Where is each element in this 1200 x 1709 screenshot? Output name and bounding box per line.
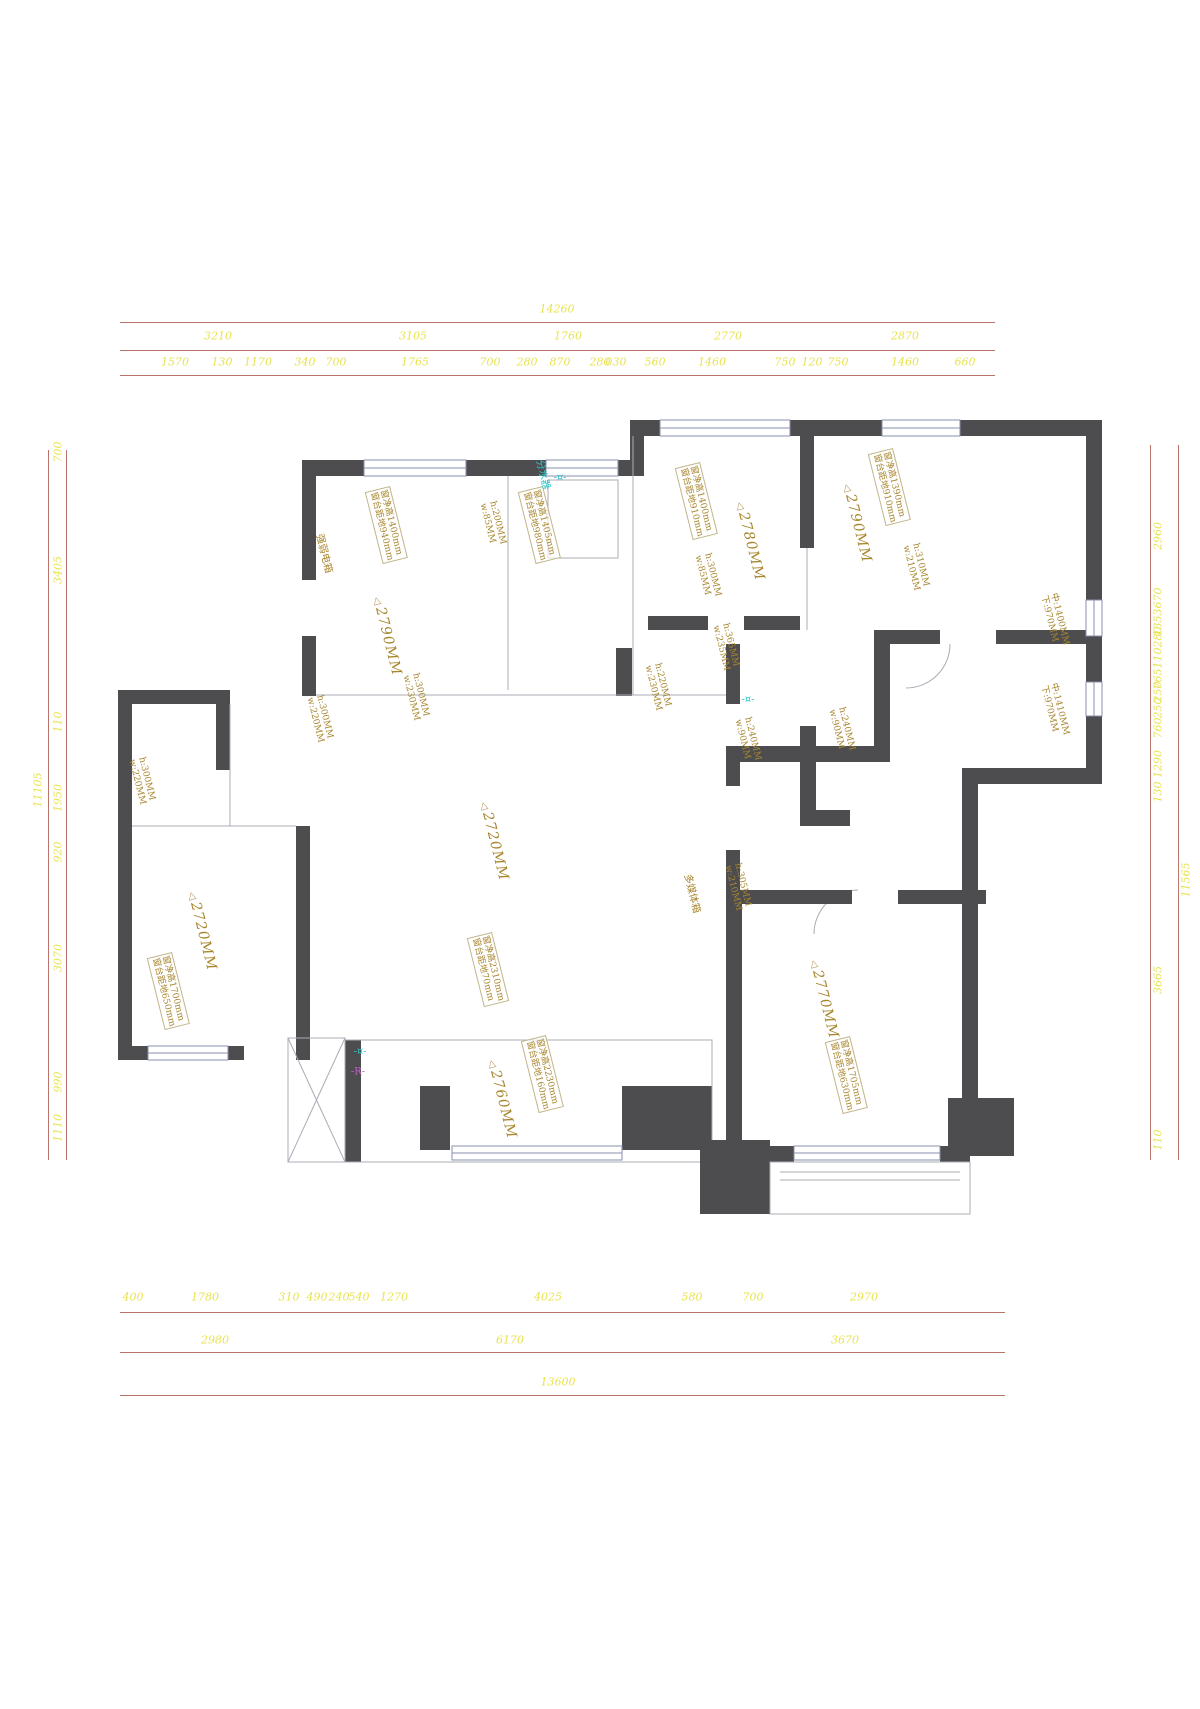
dimension-label: 750 <box>775 356 796 369</box>
dimension-label: 1270 <box>380 1291 408 1304</box>
dimension-label: 310 <box>279 1291 300 1304</box>
dimension-total-right: 11565 <box>1180 863 1193 898</box>
height-flag-icon: ◁ <box>733 501 746 512</box>
plumbing-symbol: -R- <box>351 1067 365 1078</box>
plumbing-symbol: -¤- <box>553 473 566 484</box>
dimension-label: 3070 <box>52 944 65 972</box>
dimension-label: 760 <box>1152 718 1165 739</box>
dimension-label: 1290 <box>1152 750 1165 778</box>
dimension-label: 280 <box>517 356 538 369</box>
dimension-label: 580 <box>682 1291 703 1304</box>
dimension-label: 110 <box>1152 1130 1165 1151</box>
floor-plan-canvas: 14260 32103105176027702870 1570130117034… <box>0 0 1200 1709</box>
dimension-label: 130 <box>212 356 233 369</box>
dimension-label: 240 <box>329 1291 350 1304</box>
dimension-label: 340 <box>295 356 316 369</box>
dimension-line <box>66 450 67 1160</box>
dimension-label: 1780 <box>191 1291 219 1304</box>
dimension-label: 1460 <box>891 356 919 369</box>
dimension-label: 540 <box>349 1291 370 1304</box>
dimension-label: 2980 <box>201 1334 229 1347</box>
height-flag-icon: ◁ <box>370 596 383 607</box>
plumbing-symbol: -¤- <box>353 1047 366 1058</box>
dimension-label: 2960 <box>1152 522 1165 550</box>
dimension-line <box>48 450 49 1160</box>
dimension-label: 990 <box>52 1072 65 1093</box>
dimension-label: 3665 <box>1152 966 1165 994</box>
dimension-label: 3210 <box>204 330 232 343</box>
dimension-line <box>120 322 995 323</box>
dimension-label: 2770 <box>714 330 742 343</box>
dimension-label: 700 <box>743 1291 764 1304</box>
dimension-line <box>120 375 995 376</box>
dimension-label: 1950 <box>52 784 65 812</box>
dimension-label: 560 <box>645 356 666 369</box>
dimension-line <box>1178 445 1179 1160</box>
plumbing-symbol: -¤- <box>741 695 754 706</box>
dimension-label: 4025 <box>534 1291 562 1304</box>
dimension-label: 1110 <box>52 1114 65 1142</box>
height-flag-icon: ◁ <box>840 483 853 494</box>
dimension-total-top: 14260 <box>540 303 575 316</box>
dimension-label: 700 <box>480 356 501 369</box>
dimension-label: 6170 <box>496 1334 524 1347</box>
dimension-label: 700 <box>326 356 347 369</box>
dimension-line <box>120 1395 1005 1396</box>
dimension-line <box>120 350 995 351</box>
dimension-label: 765110280 <box>1152 627 1165 690</box>
dimension-label: 120 <box>802 356 823 369</box>
dimension-label: 920 <box>52 842 65 863</box>
height-flag-icon: ◁ <box>477 801 490 812</box>
dimension-label: 1765 <box>401 356 429 369</box>
dimension-label: 110 <box>52 712 65 733</box>
dimension-label: 700 <box>52 442 65 463</box>
height-flag-icon: ◁ <box>807 959 820 970</box>
dimension-label: 3670 <box>831 1334 859 1347</box>
dimension-label: 870 <box>550 356 571 369</box>
dimension-line <box>120 1312 1005 1313</box>
dimension-label: 250 <box>1152 698 1165 719</box>
height-flag-icon: ◁ <box>485 1059 498 1070</box>
dimension-line <box>1150 445 1151 1160</box>
dimension-label: 400 <box>123 1291 144 1304</box>
dimension-label: 3105 <box>399 330 427 343</box>
dimension-label: 1570 <box>161 356 189 369</box>
dimension-label: 2970 <box>850 1291 878 1304</box>
dimension-label: 1170 <box>244 356 272 369</box>
dimension-label: 660 <box>955 356 976 369</box>
dimension-label: 490 <box>307 1291 328 1304</box>
dimension-total-left: 11105 <box>32 773 45 808</box>
dimension-label: 130 <box>1152 782 1165 803</box>
dimension-label: 3405 <box>52 556 65 584</box>
dimension-label: 1460 <box>698 356 726 369</box>
height-flag-icon: ◁ <box>185 891 198 902</box>
dimension-total-bottom: 13600 <box>541 1376 576 1389</box>
dimension-line <box>120 1352 1005 1353</box>
dimension-label: 750 <box>828 356 849 369</box>
dimension-label: 1760 <box>554 330 582 343</box>
dimension-label: 030 <box>606 356 627 369</box>
floor-plan-drawing <box>0 0 1200 1709</box>
dimension-label: 2870 <box>891 330 919 343</box>
